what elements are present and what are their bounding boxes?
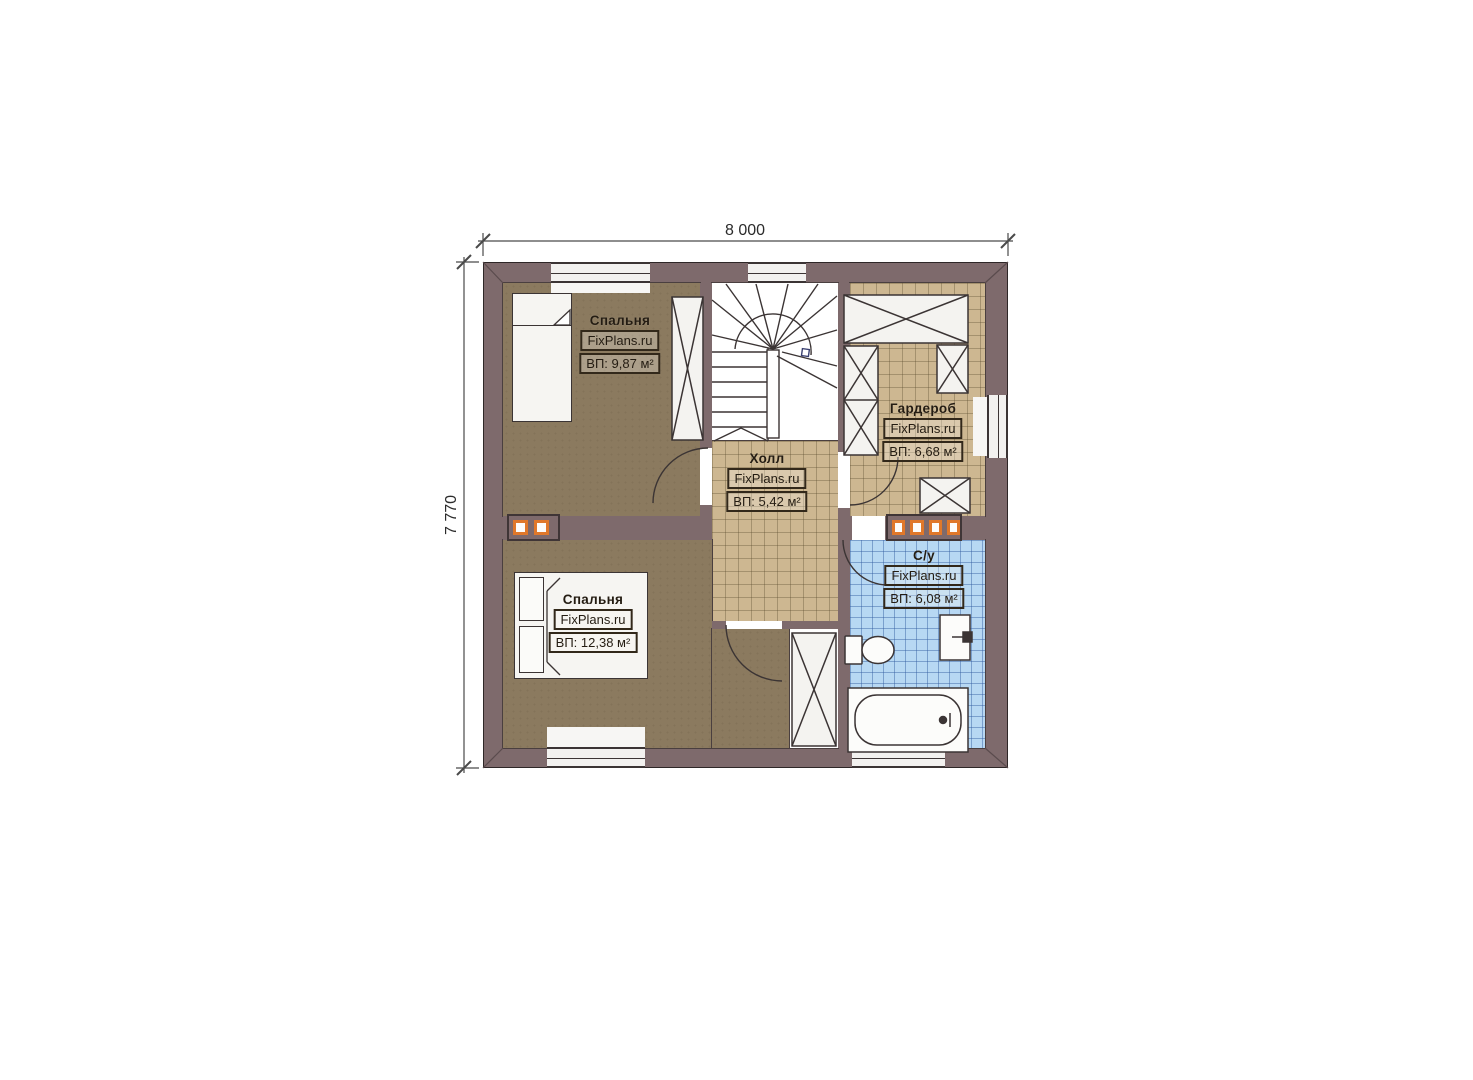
room-name: Холл bbox=[749, 451, 784, 466]
watermark-box: FixPlans.ru bbox=[884, 565, 963, 586]
room-label-bedroom-2: Спальня FixPlans.ru ВП: 12,38 м² bbox=[549, 592, 638, 653]
window-bottom-left bbox=[547, 747, 645, 768]
watermark-box: FixPlans.ru bbox=[580, 330, 659, 351]
room-name: Спальня bbox=[590, 313, 650, 328]
window-top-stairs bbox=[748, 262, 806, 283]
vent-square bbox=[892, 520, 905, 535]
area-box: ВП: 5,42 м² bbox=[726, 491, 807, 512]
watermark-box: FixPlans.ru bbox=[883, 418, 962, 439]
single-bed bbox=[512, 293, 572, 422]
room-label-bedroom-1: Спальня FixPlans.ru ВП: 9,87 м² bbox=[579, 313, 660, 374]
window-top-left bbox=[551, 262, 650, 283]
door-opening-bathroom bbox=[852, 516, 885, 540]
vent-square bbox=[947, 520, 960, 535]
wall-hall-bedroom2-b bbox=[782, 621, 838, 629]
pillow bbox=[519, 577, 544, 621]
window-recess-top bbox=[551, 283, 650, 293]
area-box: ВП: 12,38 м² bbox=[549, 632, 638, 653]
room-label-hall: Холл FixPlans.ru ВП: 5,42 м² bbox=[726, 451, 807, 512]
pillow bbox=[519, 626, 544, 673]
dimension-height-label: 7 770 bbox=[443, 495, 461, 535]
vent-block-left bbox=[507, 514, 560, 541]
closet-niche-floor bbox=[790, 629, 838, 748]
area-box: ВП: 9,87 м² bbox=[579, 353, 660, 374]
bedroom-2-floor-ext bbox=[712, 629, 790, 748]
wall-hall-bedroom2-a bbox=[712, 621, 726, 629]
room-label-wardrobe: Гардероб FixPlans.ru ВП: 6,68 м² bbox=[882, 401, 963, 462]
stairwell-floor bbox=[712, 283, 838, 441]
wall-bedroom1-stairs bbox=[700, 283, 712, 448]
wardrobe-floor bbox=[850, 283, 985, 516]
vent-square bbox=[513, 520, 528, 535]
vent-square bbox=[929, 520, 942, 535]
door-opening-wardrobe bbox=[838, 452, 850, 508]
window-recess-bottom-left bbox=[547, 727, 645, 748]
area-box: ВП: 6,68 м² bbox=[882, 441, 963, 462]
bed-pillow-area bbox=[513, 294, 571, 326]
watermark-box: FixPlans.ru bbox=[727, 468, 806, 489]
window-recess-right bbox=[973, 397, 987, 456]
dimension-width-label: 8 000 bbox=[725, 222, 765, 240]
room-name: С/у bbox=[913, 548, 935, 563]
room-label-bathroom: С/у FixPlans.ru ВП: 6,08 м² bbox=[883, 548, 964, 609]
watermark-box: FixPlans.ru bbox=[553, 609, 632, 630]
room-name: Спальня bbox=[563, 592, 623, 607]
wall-hall-bathroom bbox=[838, 508, 850, 748]
room-name: Гардероб bbox=[890, 401, 956, 416]
window-recess-bottom-right bbox=[852, 727, 945, 748]
vent-square bbox=[534, 520, 549, 535]
door-opening-bedroom1 bbox=[700, 448, 712, 505]
vent-block-right bbox=[886, 514, 962, 541]
wall-stairs-wardrobe bbox=[838, 283, 850, 452]
floor-plan-canvas: Спальня FixPlans.ru ВП: 9,87 м² Гардероб… bbox=[0, 0, 1473, 1080]
window-right bbox=[987, 395, 1008, 458]
door-opening-bedroom2 bbox=[726, 621, 782, 629]
area-box: ВП: 6,08 м² bbox=[883, 588, 964, 609]
vent-square bbox=[910, 520, 923, 535]
window-bottom-right bbox=[852, 747, 945, 768]
